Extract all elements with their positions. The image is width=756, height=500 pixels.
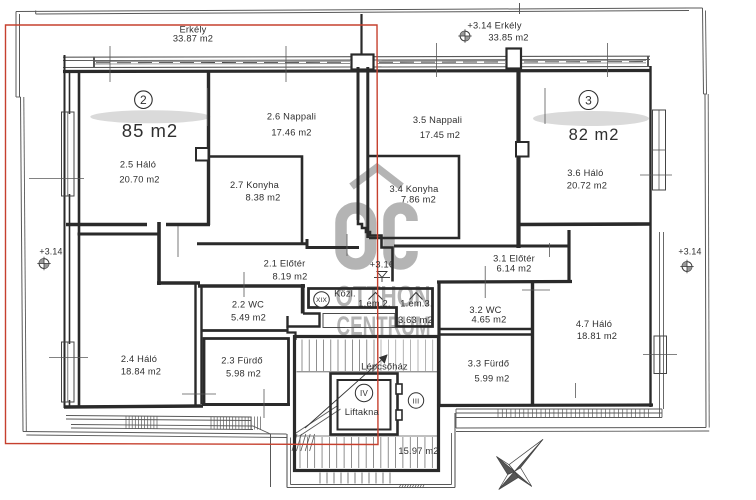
svg-text:III: III (413, 397, 420, 406)
svg-text:2.7 Konyha: 2.7 Konyha (230, 180, 280, 190)
svg-text:20.72 m2: 20.72 m2 (567, 181, 607, 191)
svg-text:2.5 Háló: 2.5 Háló (120, 160, 156, 170)
svg-text:15.97 m2: 15.97 m2 (398, 446, 438, 456)
svg-text:6.14 m2: 6.14 m2 (497, 264, 532, 274)
svg-text:17.46 m2: 17.46 m2 (271, 128, 311, 138)
svg-text:+3.14 Erkély: +3.14 Erkély (467, 21, 521, 31)
svg-text:2.4 Háló: 2.4 Háló (121, 354, 157, 364)
svg-text:+3.14: +3.14 (678, 247, 701, 257)
svg-text:+3.14: +3.14 (39, 247, 62, 257)
svg-text:2.2 WC: 2.2 WC (232, 300, 264, 310)
svg-text:2: 2 (140, 93, 147, 107)
svg-text:85 m2: 85 m2 (122, 120, 178, 141)
svg-text:5.49 m2: 5.49 m2 (231, 313, 266, 323)
svg-text:3.5 Nappali: 3.5 Nappali (413, 115, 462, 125)
svg-text:2.3 Fürdő: 2.3 Fürdő (221, 356, 263, 366)
svg-text:82 m2: 82 m2 (569, 126, 620, 144)
svg-text:Közl.: Közl. (334, 289, 356, 299)
svg-text:3.4 Konyha: 3.4 Konyha (389, 184, 439, 194)
svg-text:4.65 m2: 4.65 m2 (472, 315, 507, 325)
svg-text:8.19 m2: 8.19 m2 (273, 272, 308, 282)
svg-text:18.81 m2: 18.81 m2 (577, 331, 617, 341)
svg-text:1.em.2.: 1.em.2. (358, 299, 390, 309)
svg-text:7.86 m2: 7.86 m2 (401, 195, 436, 205)
svg-text:2.1 Előtér: 2.1 Előtér (264, 259, 306, 269)
svg-text:20.70 m2: 20.70 m2 (119, 175, 159, 185)
svg-text:3.1 Előtér: 3.1 Előtér (493, 254, 535, 264)
svg-text:IV: IV (360, 389, 368, 398)
svg-text:Liftakna: Liftakna (345, 407, 380, 417)
svg-text:3: 3 (585, 94, 592, 108)
svg-text:2.6 Nappali: 2.6 Nappali (267, 112, 316, 122)
svg-text:3.2 WC: 3.2 WC (469, 305, 501, 315)
svg-text:33.87 m2: 33.87 m2 (173, 34, 213, 44)
svg-text:4.7 Háló: 4.7 Háló (576, 319, 612, 329)
svg-text:3.63 m2: 3.63 m2 (398, 315, 433, 325)
svg-text:3.3 Fürdő: 3.3 Fürdő (468, 359, 510, 369)
svg-text:18.84 m2: 18.84 m2 (121, 367, 161, 377)
svg-text:17.45 m2: 17.45 m2 (420, 130, 460, 140)
svg-text:3.6 Háló: 3.6 Háló (567, 168, 603, 178)
svg-text:33.85 m2: 33.85 m2 (488, 33, 528, 43)
svg-text:8.38 m2: 8.38 m2 (246, 193, 281, 203)
svg-text:5.99 m2: 5.99 m2 (475, 374, 510, 384)
svg-text:1.em.3.: 1.em.3. (400, 299, 432, 309)
svg-text:XIX: XIX (316, 297, 328, 304)
svg-text:5.98 m2: 5.98 m2 (226, 369, 261, 379)
svg-text:Lépcsőház: Lépcsőház (361, 362, 408, 372)
svg-text:+3.16: +3.16 (370, 260, 395, 270)
